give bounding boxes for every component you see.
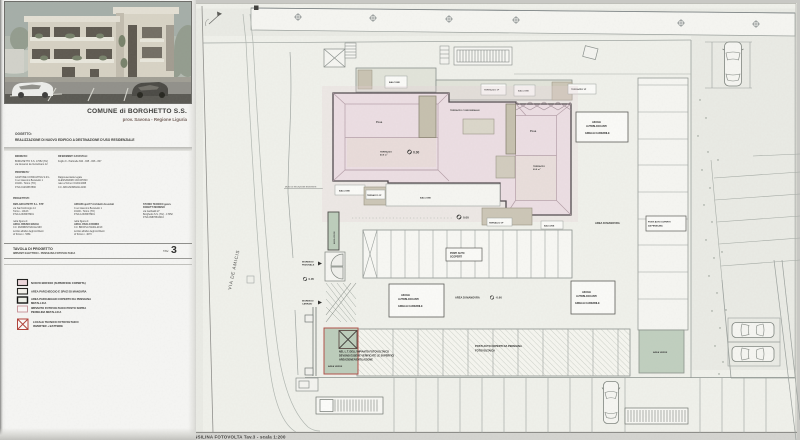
svg-text:POSTI AUTO COPERTI: POSTI AUTO COPERTI <box>648 221 671 224</box>
svg-text:AREA VERDE: AREA VERDE <box>653 351 668 354</box>
svg-text:AIUOLE: AIUOLE <box>582 291 591 294</box>
svg-text:-0.60: -0.60 <box>496 296 503 300</box>
svg-text:GRIGLIA CARRABILE: GRIGLIA CARRABILE <box>585 132 610 135</box>
svg-text:TERRAZZO 1P: TERRAZZO 1P <box>489 222 504 225</box>
svg-text:POSTI AUTO COPERTI DA PENSILIN: POSTI AUTO COPERTI DA PENSILINA <box>475 344 522 348</box>
svg-text:TERRAZZO CONDOMINIALE: TERRAZZO CONDOMINIALE <box>450 109 480 112</box>
svg-text:GRIGLIA CARRABILE: GRIGLIA CARRABILE <box>398 305 423 308</box>
svg-text:AREA VERDE: AREA VERDE <box>333 231 336 244</box>
svg-text:INGRESSO: INGRESSO <box>302 262 314 264</box>
svg-text:GRIGLIA CARRABILE: GRIGLIA CARRABILE <box>575 302 600 305</box>
svg-text:40.8 m²: 40.8 m² <box>380 154 388 157</box>
svg-text:AREA PARCHEGGIO E SPAZI DI MAN: AREA PARCHEGGIO E SPAZI DI MANOVRA <box>31 290 87 294</box>
svg-text:CARRAIO: CARRAIO <box>302 303 313 306</box>
svg-text:PENSILINA FOTOVOLTA Tav.3 - sc: PENSILINA FOTOVOLTA Tav.3 - scala 1:200 <box>188 435 286 440</box>
svg-text:MURO DI RECINZIONE ESISTENTE: MURO DI RECINZIONE ESISTENTE <box>285 187 317 189</box>
svg-text:Posa: Posa <box>530 129 537 133</box>
svg-text:BALCONE: BALCONE <box>339 190 350 193</box>
svg-text:IMPIANTO FOTOVOLTAICO POSTO SO: IMPIANTO FOTOVOLTAICO POSTO SOPRA <box>31 306 86 310</box>
svg-text:TERRAZZO: TERRAZZO <box>380 151 392 154</box>
svg-text:DEVONO ESSERE VERIFICATE LE SU: DEVONO ESSERE VERIFICATE LE SUPERFICI <box>339 355 394 358</box>
svg-text:AUTOBLOCCANTI: AUTOBLOCCANTI <box>586 125 607 128</box>
svg-text:INVERTER + BATTERIE: INVERTER + BATTERIE <box>33 324 63 328</box>
svg-text:AIUOLE: AIUOLE <box>401 294 410 297</box>
svg-text:INGRESSO: INGRESSO <box>302 301 314 303</box>
svg-text:NUOVO EDIFICIO (SUPERFICIE COP: NUOVO EDIFICIO (SUPERFICIE COPERTA) <box>31 281 86 285</box>
svg-text:TERRAZZO 1P: TERRAZZO 1P <box>367 194 382 197</box>
svg-text:AREAZIONE/VENTILAZIONE: AREAZIONE/VENTILAZIONE <box>339 359 373 362</box>
svg-text:AIUOLE: AIUOLE <box>592 121 601 124</box>
svg-text:FOTOVOLTAICA: FOTOVOLTAICA <box>475 349 495 353</box>
svg-text:AREA VERDE: AREA VERDE <box>328 365 343 368</box>
svg-text:BALCONE: BALCONE <box>420 197 431 200</box>
svg-text:Posa: Posa <box>376 120 383 124</box>
svg-text:AREA DI MANOVRA: AREA DI MANOVRA <box>595 221 620 225</box>
svg-text:BALCONE: BALCONE <box>544 225 555 228</box>
svg-text:PEDONALE: PEDONALE <box>302 264 315 267</box>
svg-text:AREA DI MANOVRA: AREA DI MANOVRA <box>455 296 480 300</box>
svg-text:NEL L.T. DELL'IMPIANTO FOTOVOL: NEL L.T. DELL'IMPIANTO FOTOVOLTAICO <box>339 351 389 354</box>
svg-text:0.05: 0.05 <box>309 277 315 281</box>
svg-text:0.00: 0.00 <box>463 215 469 219</box>
svg-text:AREA PARCHEGGIO COPERTO DA PEN: AREA PARCHEGGIO COPERTO DA PENSILINA <box>31 297 91 301</box>
svg-text:PENSILINA METALLICA: PENSILINA METALLICA <box>31 310 61 314</box>
svg-text:AUTOBLOCCANTI: AUTOBLOCCANTI <box>398 298 419 301</box>
svg-text:AUTOBLOCCANTI: AUTOBLOCCANTI <box>576 295 597 298</box>
svg-text:60.8 m²: 60.8 m² <box>533 168 541 171</box>
svg-text:LOCALE TECNICO FOTOVOLTAICO: LOCALE TECNICO FOTOVOLTAICO <box>33 320 79 324</box>
svg-text:0.00: 0.00 <box>413 150 419 154</box>
svg-text:METALLICA: METALLICA <box>31 301 46 305</box>
svg-text:SCOPERTI: SCOPERTI <box>450 256 463 259</box>
svg-text:TERRAZZO: TERRAZZO <box>533 165 545 168</box>
svg-text:DA PENSILINA: DA PENSILINA <box>648 225 663 228</box>
svg-text:BALCONE: BALCONE <box>389 81 400 84</box>
